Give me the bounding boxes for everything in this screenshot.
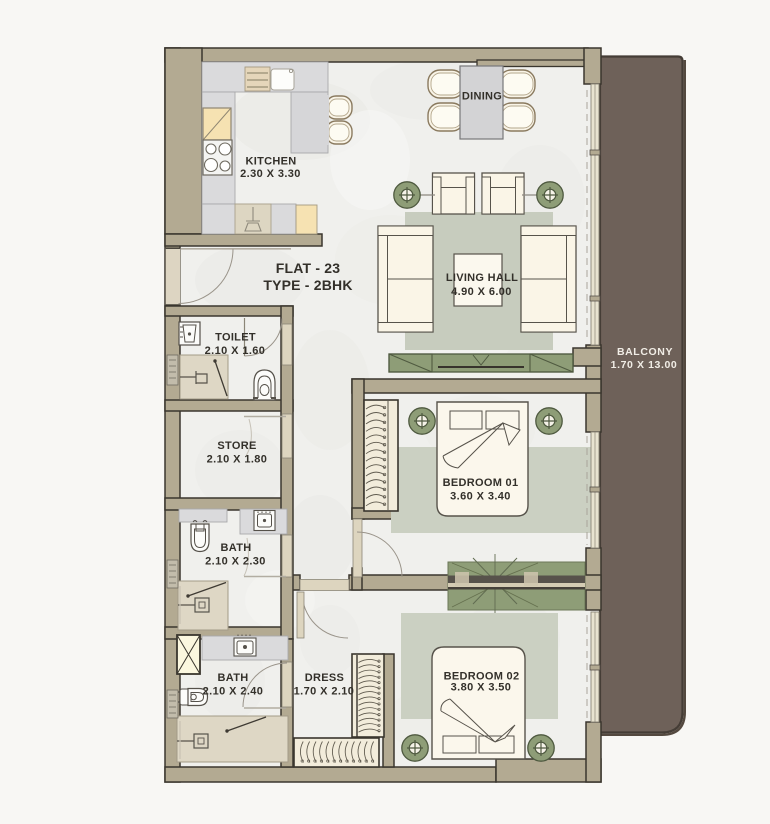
svg-text:2.30 X 3.30: 2.30 X 3.30 [240,168,301,180]
svg-text:1.70 X 13.00: 1.70 X 13.00 [611,359,678,371]
svg-text:BEDROOM 01: BEDROOM 01 [443,477,519,489]
svg-text:DRESS: DRESS [305,672,344,684]
svg-text:LIVING HALL: LIVING HALL [446,272,518,284]
svg-text:1.70 X 2.10: 1.70 X 2.10 [294,686,355,698]
svg-text:2.10 X 2.30: 2.10 X 2.30 [205,556,266,568]
svg-text:TOILET: TOILET [215,332,256,344]
svg-text:3.80 X 3.50: 3.80 X 3.50 [451,682,512,694]
svg-text:TYPE - 2BHK: TYPE - 2BHK [263,277,352,293]
svg-text:2.10 X 1.80: 2.10 X 1.80 [207,454,268,466]
svg-text:BALCONY: BALCONY [617,346,673,358]
svg-text:3.60 X 3.40: 3.60 X 3.40 [450,491,511,503]
svg-text:BATH: BATH [221,542,252,554]
svg-text:2.10 X 1.60: 2.10 X 1.60 [205,345,266,357]
svg-text:KITCHEN: KITCHEN [246,156,297,168]
svg-text:DINING: DINING [462,91,502,103]
svg-text:FLAT - 23: FLAT - 23 [276,260,341,276]
svg-text:BATH: BATH [218,672,249,684]
svg-text:2.10 X 2.40: 2.10 X 2.40 [203,686,264,698]
svg-text:4.90 X 6.00: 4.90 X 6.00 [451,286,512,298]
svg-text:STORE: STORE [217,440,256,452]
